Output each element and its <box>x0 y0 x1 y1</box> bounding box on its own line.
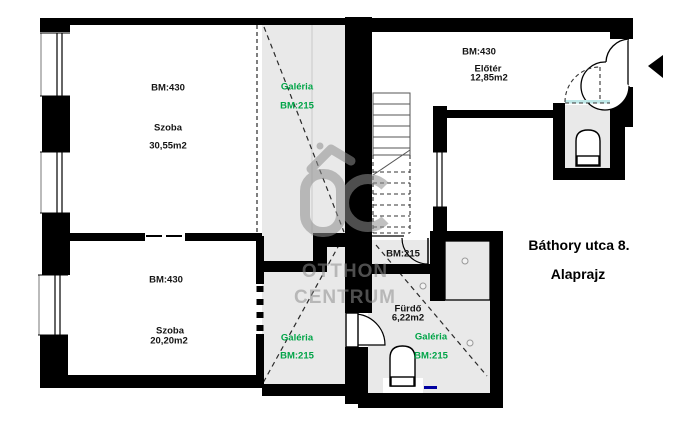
wall-hall-bottom <box>372 264 430 274</box>
window-room1-upper <box>40 33 70 96</box>
plan-address-title: Báthory utca 8. <box>528 238 629 252</box>
galeria-upper-name-label: Galéria <box>281 82 313 92</box>
wall-top-right <box>345 18 633 32</box>
window-room2 <box>38 275 68 335</box>
wall-galeria-step-h <box>262 261 313 272</box>
wall-bathblock-bottom <box>358 393 503 408</box>
wall-bottom-room2 <box>40 375 264 388</box>
wall-entrance-top <box>610 18 633 39</box>
hall-bm-label: BM:215 <box>386 249 420 259</box>
eloter-bm-label: BM:430 <box>462 47 496 57</box>
stairs <box>373 93 410 233</box>
wall-wc-right <box>610 127 625 180</box>
room1-bm-label: BM:430 <box>151 83 185 93</box>
wall-room2-right-lower <box>256 334 264 384</box>
wall-bathblock-right <box>490 231 503 408</box>
floor-plan-drawing <box>0 0 688 448</box>
marker-circle-shower <box>462 258 468 264</box>
bathroom-toilet-icon <box>390 346 415 386</box>
galeria-upper-bm-label: BM:215 <box>280 101 314 111</box>
marker-circle-bath2 <box>467 340 473 346</box>
room2-area-label: 20,20m2 <box>150 336 188 346</box>
blue-fixture-mark <box>424 386 437 389</box>
wall-top-left-corner <box>40 18 70 32</box>
room2-bm-label: BM:430 <box>149 275 183 285</box>
furdo-area-label: 6,22m2 <box>392 313 424 323</box>
wall-wc-stub <box>530 110 555 118</box>
wall-top-room1 <box>68 18 262 25</box>
window-room1-lower <box>40 152 70 213</box>
wall-stair-column <box>345 17 372 313</box>
shower-enclosure <box>445 241 490 300</box>
wall-bathblock-inner <box>430 231 445 301</box>
wall-stairhall-right-upper <box>433 106 447 152</box>
room1-name-label: Szoba <box>154 123 182 133</box>
galeria-lower-bm-label: BM:215 <box>280 351 314 361</box>
bathroom-door-leaf <box>346 313 358 347</box>
room1-area-label: 30,55m2 <box>149 141 187 151</box>
wall-divider-right <box>185 233 262 241</box>
floor-plan: BM:430 Szoba 30,55m2 BM:430 Szoba 20,20m… <box>0 0 688 448</box>
galeria-strip-floor <box>262 25 345 385</box>
wall-divider-left <box>65 233 145 241</box>
wall-room2-right-upper <box>256 236 264 284</box>
wc-toilet-icon <box>576 130 600 166</box>
entrance-door <box>581 38 629 110</box>
entrance-arrow-icon <box>648 55 663 78</box>
bath-galeria-bm-label: BM:215 <box>414 351 448 361</box>
eloter-area-label: 12,85m2 <box>470 73 508 83</box>
wall-galeria-bottom <box>262 384 348 396</box>
window-stairhall <box>433 152 447 207</box>
galeria-lower-name-label: Galéria <box>281 333 313 343</box>
wall-left-middle <box>42 213 70 275</box>
marker-circle-bath1 <box>420 283 426 289</box>
plan-subtitle: Alaprajz <box>551 267 605 281</box>
wall-left-between-windows <box>42 96 70 152</box>
wall-top-galeria <box>262 18 345 25</box>
bath-galeria-name-label: Galéria <box>415 332 447 342</box>
